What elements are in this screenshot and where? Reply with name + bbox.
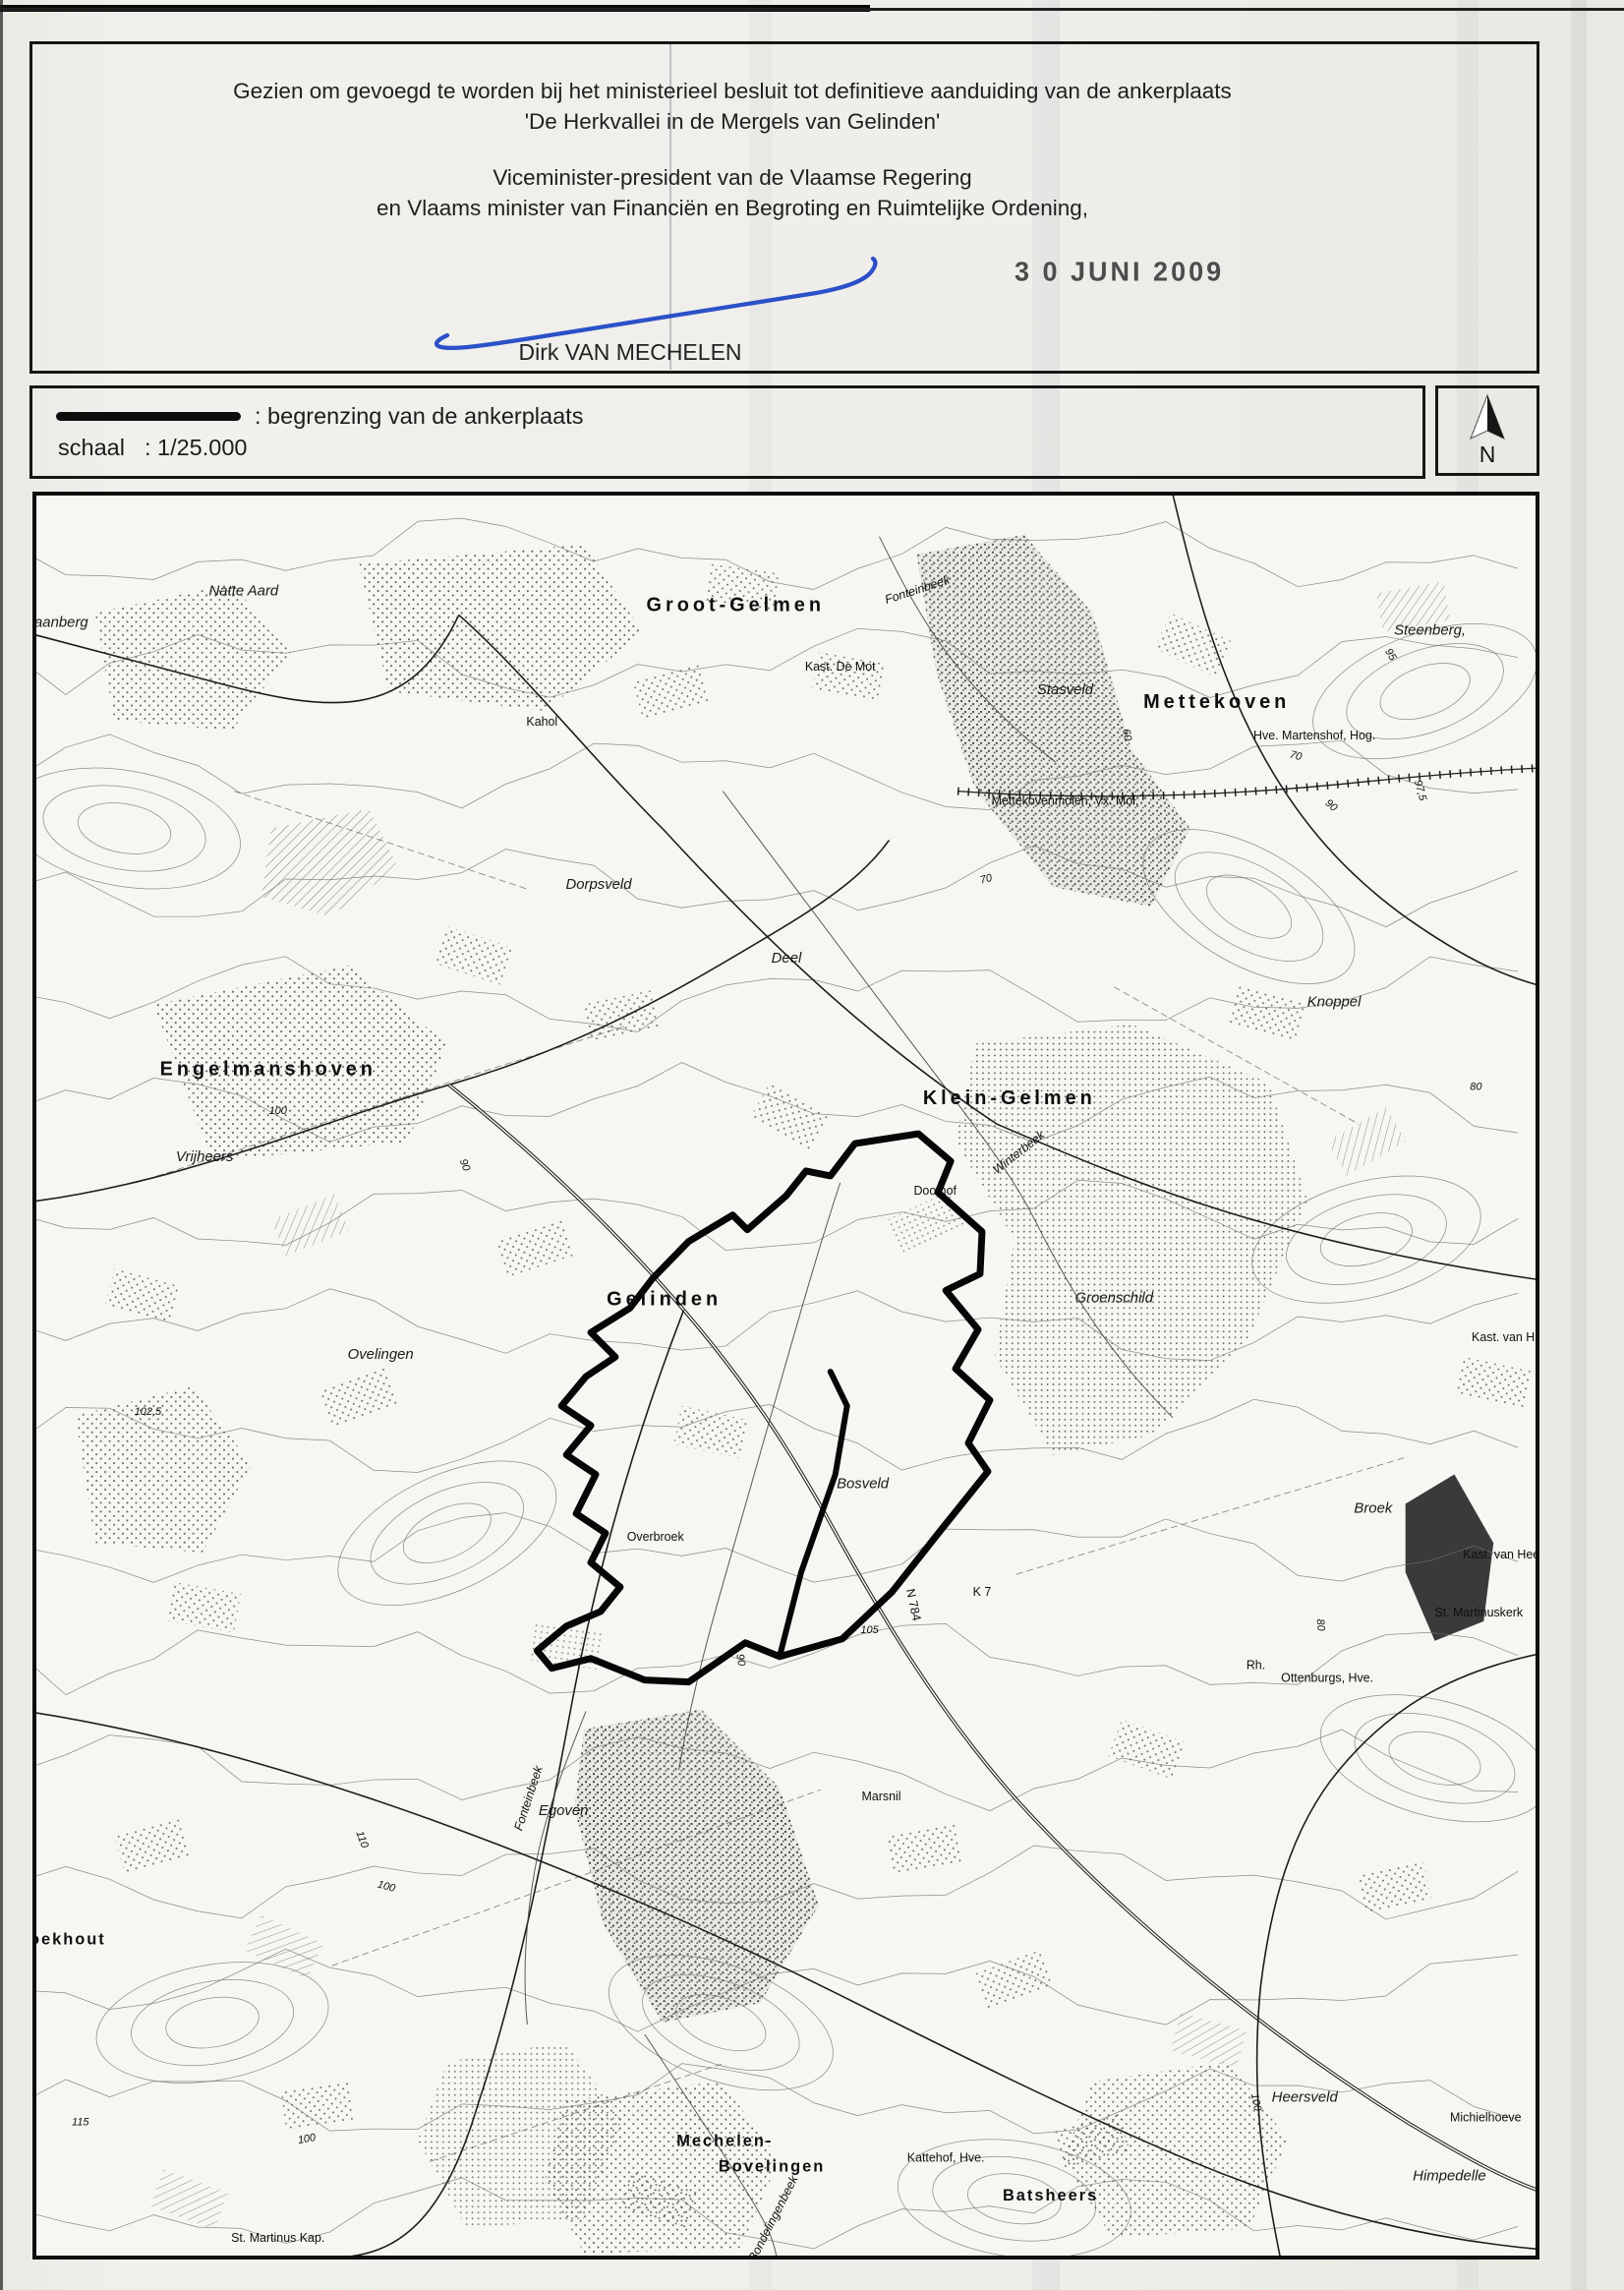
map-label: Deel [772,950,802,967]
contour-loop [1345,1697,1525,1819]
map-canvas: Groot-GelmenMettekovenEngelmanshovenKlei… [36,496,1536,2256]
map-label: Overbroek [627,1530,685,1544]
contour-loop [394,1492,500,1576]
map-label: Kraanberg [36,614,88,630]
roads-and-streams [36,496,1536,2256]
map-label: Heersveld [1272,2089,1339,2106]
map-label: Kast. De Mot [805,660,876,674]
map-label: Doofhof [913,1184,957,1198]
contour-line [36,734,1518,810]
map-label: 90 [457,1157,472,1173]
header-line: Gezien om gevoegd te worden bij het mini… [32,76,1432,106]
legend-scale-value: : 1/25.000 [145,435,248,461]
contour-loop [36,751,250,906]
landuse-patches [76,535,1532,2254]
contour-loop [1372,652,1478,730]
map-label: Ottenburgs, Hve. [1281,1672,1373,1685]
map-label: Hve. Martenshof, Hog. [1253,729,1375,742]
contour-line [36,1513,1518,1583]
map-label: 100 [377,1879,397,1895]
map-label: Bovelingen [719,2157,825,2175]
contour-loop [1383,1723,1486,1794]
north-arrow-icon [1465,393,1510,444]
north-arrow-box: N [1435,385,1539,476]
map-label: 95 [1382,646,1399,663]
map-label: St. Martinus Kap. [231,2231,324,2245]
header-box: Gezien om gevoegd te worden bij het mini… [29,41,1539,374]
contour-loop [74,796,175,861]
map-label: Groot-Gelmen [647,594,825,616]
map-label: Groenschild [1074,1289,1153,1306]
map-label: Kahol [526,715,557,729]
map-label: Vrijheers [176,1148,234,1165]
signer-name: Dirk VAN MECHELEN [483,339,778,366]
map-label: 97,5 [1412,779,1428,803]
map-label: Michielhoeve [1450,2111,1522,2125]
map-label: Klein-Gelmen [923,1087,1096,1109]
scan-streak [1571,0,1587,2290]
north-label: N [1479,441,1496,468]
signature-stroke [436,259,875,348]
map-label: 110 [353,1830,370,1850]
contour-lines [36,518,1536,2256]
map-label: Marsnil [861,1790,900,1803]
legend-scale-label: schaal [58,435,125,461]
map-label: 70 [1289,749,1304,764]
map-label: 90 [1323,797,1340,814]
contour-loop [1196,862,1303,952]
map-label: 60 [1120,728,1133,741]
map-label: Mettekovenmolen, Vx. Mol. [992,794,1139,808]
map-label: 115 [72,2117,89,2129]
map-label: Mettekoven [1143,691,1290,713]
scan-edge-line [0,8,1624,11]
map-label: Ovelingen [348,1346,414,1363]
contour-loop [36,774,212,883]
map-label: Kattehof, Hve. [907,2150,985,2164]
contour-loop [355,1461,539,1605]
map-label: K 7 [973,1585,992,1599]
map-label: boekhout [36,1930,106,1948]
map-label: Gelinden [607,1288,722,1310]
map-label: 80 [1314,1618,1327,1631]
map-label: Kast. van H [1472,1330,1535,1344]
map-label: Egoven [539,1802,589,1819]
map-label: Dorpsveld [565,876,632,893]
map-label: Bosveld [837,1475,890,1492]
map-label: St. Martinuskerk [1434,1606,1523,1619]
legend-boundary-label: : begrenzing van de ankerplaats [255,403,583,430]
date-stamp: 3 0 JUNI 2009 [1015,256,1224,287]
map-label: Kast. van Hee [1463,1548,1536,1561]
header-line: 'De Herkvallei in de Mergels van Gelinde… [32,106,1432,137]
contour-loop [317,1432,578,1635]
header-line: Viceminister-president van de Vlaamse Re… [32,162,1432,193]
header-line: en Vlaams minister van Financiën en Begr… [32,193,1432,223]
map-label: Stasveld [1037,681,1094,698]
ankerplaats-boundary-fold [780,1372,847,1657]
map-label: Batsheers [1003,2187,1098,2204]
scanned-document-page: Gezien om gevoegd te worden bij het mini… [0,0,1624,2290]
map-label: 102,5 [135,1406,162,1418]
map-label: Fonteinbeek [511,1763,546,1832]
map-label: Himpedelle [1413,2167,1486,2184]
map-label: Mechelen- [676,2132,773,2149]
contour-loop [162,1990,263,2055]
legend-box: : begrenzing van de ankerplaats schaal :… [29,385,1425,479]
map-label: 70 [979,872,994,887]
map-label: Steenberg, [1394,621,1466,638]
map-label: 80 [1470,1081,1481,1092]
header-text-block: Gezien om gevoegd te worden bij het mini… [32,76,1432,223]
scan-edge-line [0,0,3,2290]
map-label: Natte Aard [209,583,279,600]
contour-loop [1157,830,1341,983]
map-label: Broek [1354,1499,1393,1516]
boundary-line-symbol [56,412,241,421]
map-label: N 784 [903,1587,924,1621]
map-label: 105 [860,1624,879,1636]
topographic-map: Groot-GelmenMettekovenEngelmanshovenKlei… [32,492,1539,2260]
map-label: Engelmanshoven [160,1058,377,1080]
map-label: Knoppel [1307,994,1362,1011]
map-label: 100 [297,2132,317,2146]
contour-line [36,846,1518,927]
map-label: Rh. [1247,1659,1265,1673]
map-label: 90 [733,1653,747,1667]
contour-line [36,1289,1518,1361]
map-label: 100 [269,1105,287,1117]
